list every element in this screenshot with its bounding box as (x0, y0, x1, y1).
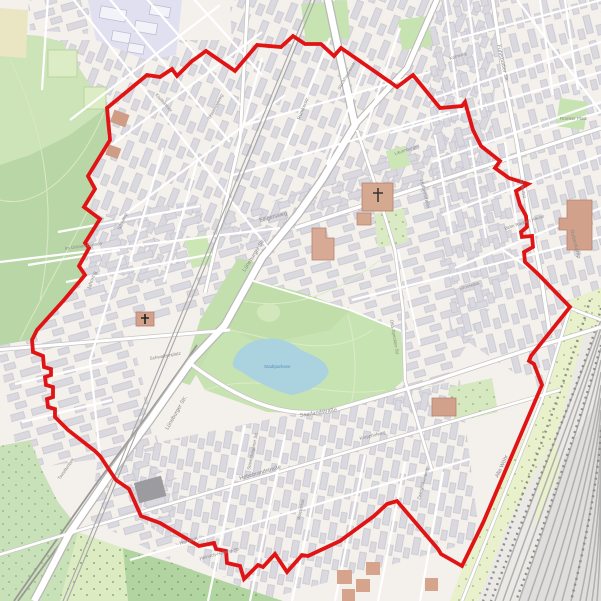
svg-text:Stadtparksee: Stadtparksee (264, 364, 291, 369)
svg-text:Rümker Platz: Rümker Platz (560, 116, 588, 121)
